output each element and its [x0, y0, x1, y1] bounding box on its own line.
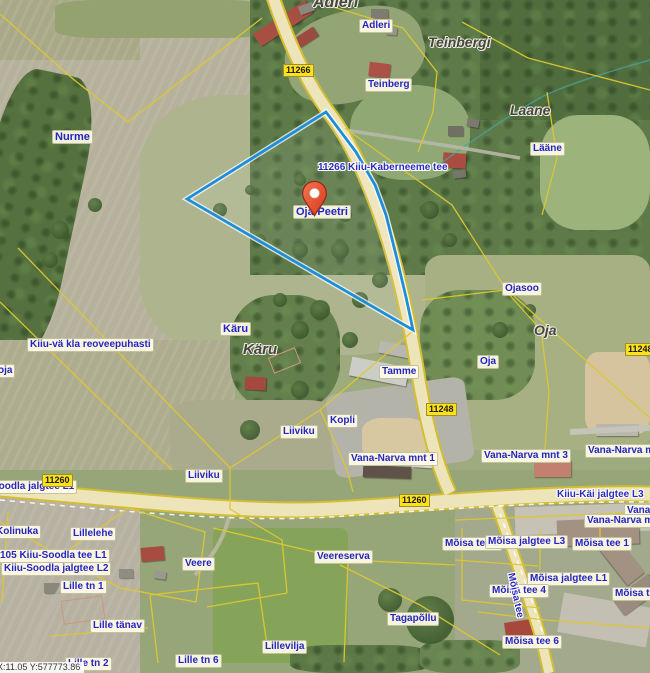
parcel-label[interactable]: Vana-Narva mnt 1 — [348, 452, 438, 466]
parcel-label[interactable]: Mõisa tee — [612, 587, 650, 601]
road-name-label: Kiiu-Käi jalgtee L3 — [557, 489, 644, 500]
parcel-label[interactable]: Lillelehe — [70, 527, 116, 541]
coordinate-readout: X:11.05 Y:577773.86 — [0, 662, 84, 673]
parcel-label[interactable]: Vana-Narva mnt — [585, 444, 650, 458]
area-name-label: Adleri — [313, 0, 358, 12]
parcel-label[interactable]: Lääne — [530, 142, 565, 156]
parcel-label[interactable]: Oja — [477, 355, 499, 369]
parcel-label[interactable]: Lillevilja — [262, 640, 307, 654]
parcel-label[interactable]: Kiiu-Soodla jalgtee L2 — [1, 562, 111, 576]
road-number-badge: 11248 — [625, 343, 650, 356]
parcel-label[interactable]: Kolinuka — [0, 525, 41, 539]
parcel-label[interactable]: Veereserva — [314, 550, 373, 564]
area-name-label: Laane — [510, 102, 550, 118]
parcel-label[interactable]: Vana-Narva mnt 3 — [481, 449, 571, 463]
parcel-label[interactable]: Mõisa tee 1 — [572, 537, 632, 551]
parcel-label[interactable]: Lille tn 1 — [60, 580, 107, 594]
parcel-label[interactable]: Liiviku — [185, 469, 223, 483]
parcel-label[interactable]: Liiviku — [280, 425, 318, 439]
area-name-label: Käru — [243, 341, 277, 358]
location-marker-icon[interactable] — [301, 180, 328, 217]
parcel-label[interactable]: Adleri — [359, 19, 393, 33]
road-number-badge: 11248 — [426, 403, 457, 416]
area-name-label: Teinbergi — [428, 34, 491, 50]
parcel-label[interactable]: Kiiu-vä kla reoveepuhasti — [27, 338, 154, 352]
parcel-label[interactable]: Tamme — [379, 365, 419, 379]
parcel-label[interactable]: Kopli — [327, 414, 358, 428]
parcel-label[interactable]: Lille tn 6 — [175, 654, 222, 668]
parcel-label[interactable]: Vana-Narva mnt — [584, 514, 650, 528]
parcel-label[interactable]: Lille tänav — [90, 619, 145, 633]
parcel-label[interactable]: 105 Kiiu-Soodla tee L1 — [0, 549, 110, 563]
parcel-label[interactable]: Teinberg — [365, 78, 412, 92]
map-canvas[interactable]: AdleriTeinbergNurmeLääneOja-PeetriOjasoo… — [0, 0, 650, 673]
parcel-label[interactable]: Ojasoo — [502, 282, 542, 296]
road-number-badge: 11260 — [42, 474, 73, 487]
parcel-label[interactable]: Veere — [182, 557, 215, 571]
parcel-label[interactable]: oja — [0, 364, 15, 378]
road-name-label: 11266 Kiiu-Kaberneeme tee — [318, 162, 448, 173]
parcel-label[interactable]: Tagapõllu — [387, 612, 439, 626]
parcel-label[interactable]: Käru — [220, 322, 251, 336]
area-name-label: Oja — [534, 322, 557, 338]
parcel-label[interactable]: Mõisa jalgtee L3 — [485, 535, 568, 549]
road-number-badge: 11266 — [283, 64, 314, 77]
parcel-label[interactable]: Mõisa tee 6 — [502, 635, 562, 649]
parcel-label[interactable]: Nurme — [52, 130, 93, 144]
road-number-badge: 11260 — [399, 494, 430, 507]
